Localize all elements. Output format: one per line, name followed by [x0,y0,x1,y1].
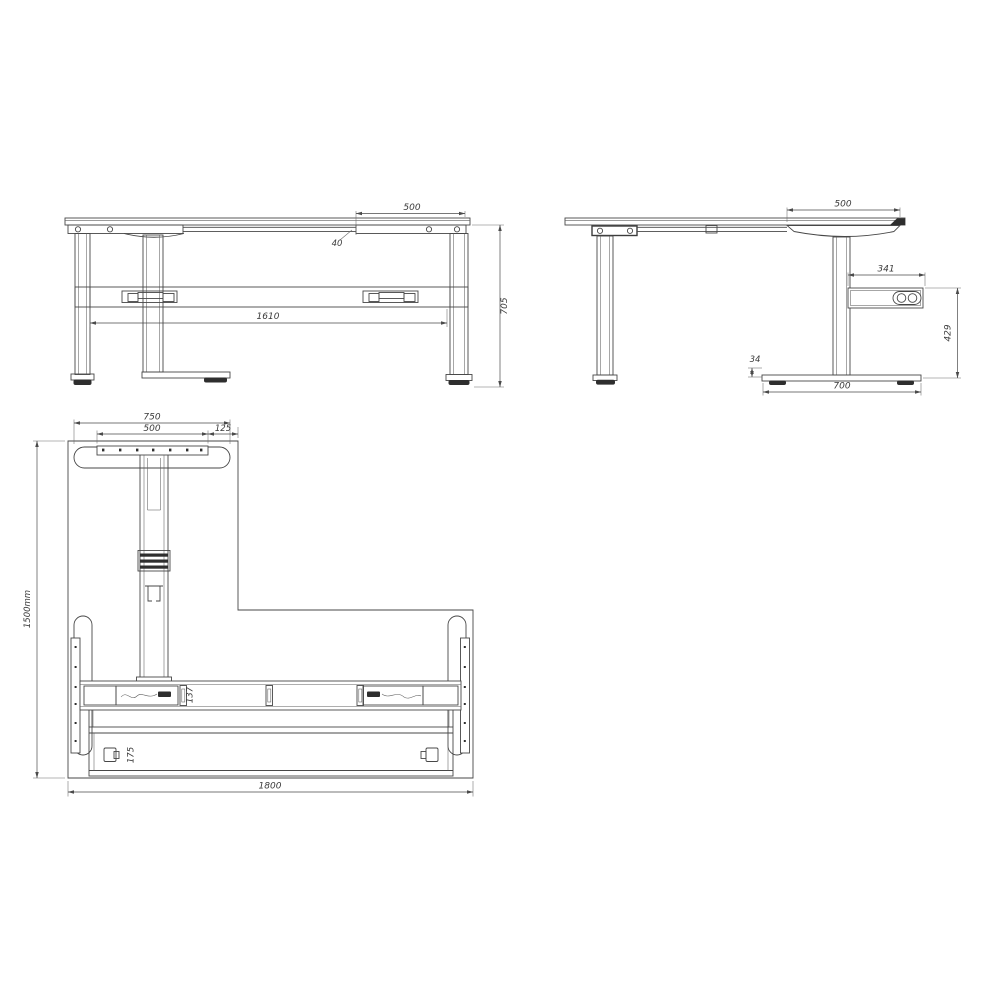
front-crossbeam [75,287,468,307]
technical-drawing: 500 40 1610 705 [0,0,1000,1000]
side-control-box [848,288,923,308]
side-dim-overhang: 500 [834,200,851,210]
plan-view: 750 500 125 1500mm 1800 137 175 [23,413,473,797]
front-handle-right [363,291,418,303]
plan-dim-edge-offset: 125 [215,424,231,434]
plan-lower-beam [89,710,453,776]
front-desktop [65,218,470,225]
side-dim-foot-depth: 700 [833,382,850,392]
plan-top-foot [74,446,230,468]
front-dim-beam-length: 1610 [257,312,280,322]
cable-plug-right [367,692,380,698]
side-dim-box-width: 341 [877,265,894,275]
front-right-leg [446,234,472,386]
front-dim-height: 705 [500,297,510,314]
beam-clip-right [426,748,438,762]
side-right-leg [833,237,850,375]
front-left-leg [71,234,94,386]
plan-crossbeam [80,681,461,710]
plan-return-column [137,455,172,687]
plan-dim-foot-width: 750 [143,413,160,423]
front-view: 500 40 1610 705 [65,203,510,387]
plan-desktop-outline [68,441,473,778]
cable-plug-left [158,692,171,698]
front-center-leg [142,235,230,383]
side-dim-box-floor: 429 [944,324,954,341]
side-underframe [592,226,900,237]
side-dim-foot-height: 34 [750,355,761,365]
front-underframe-rails [68,225,466,237]
front-handle-left [122,291,177,303]
front-dimensions: 500 40 1610 705 [90,203,510,387]
plan-dimensions: 750 500 125 1500mm 1800 137 175 [23,413,473,797]
front-dim-gap: 40 [332,239,343,249]
plan-dim-depth: 1500mm [23,590,33,628]
side-desktop [565,218,905,225]
plan-dim-plate-width: 500 [143,424,160,434]
side-left-leg [593,236,617,385]
plan-dim-total-width: 1800 [259,782,282,792]
side-view: 500 341 429 34 700 [565,200,961,396]
plan-dim-crossbeam-width: 137 [186,686,196,703]
plan-dim-lower-beam-width: 175 [127,747,137,763]
drawing-sheet: 500 40 1610 705 [0,0,1000,1000]
front-dim-overhang: 500 [403,203,420,213]
